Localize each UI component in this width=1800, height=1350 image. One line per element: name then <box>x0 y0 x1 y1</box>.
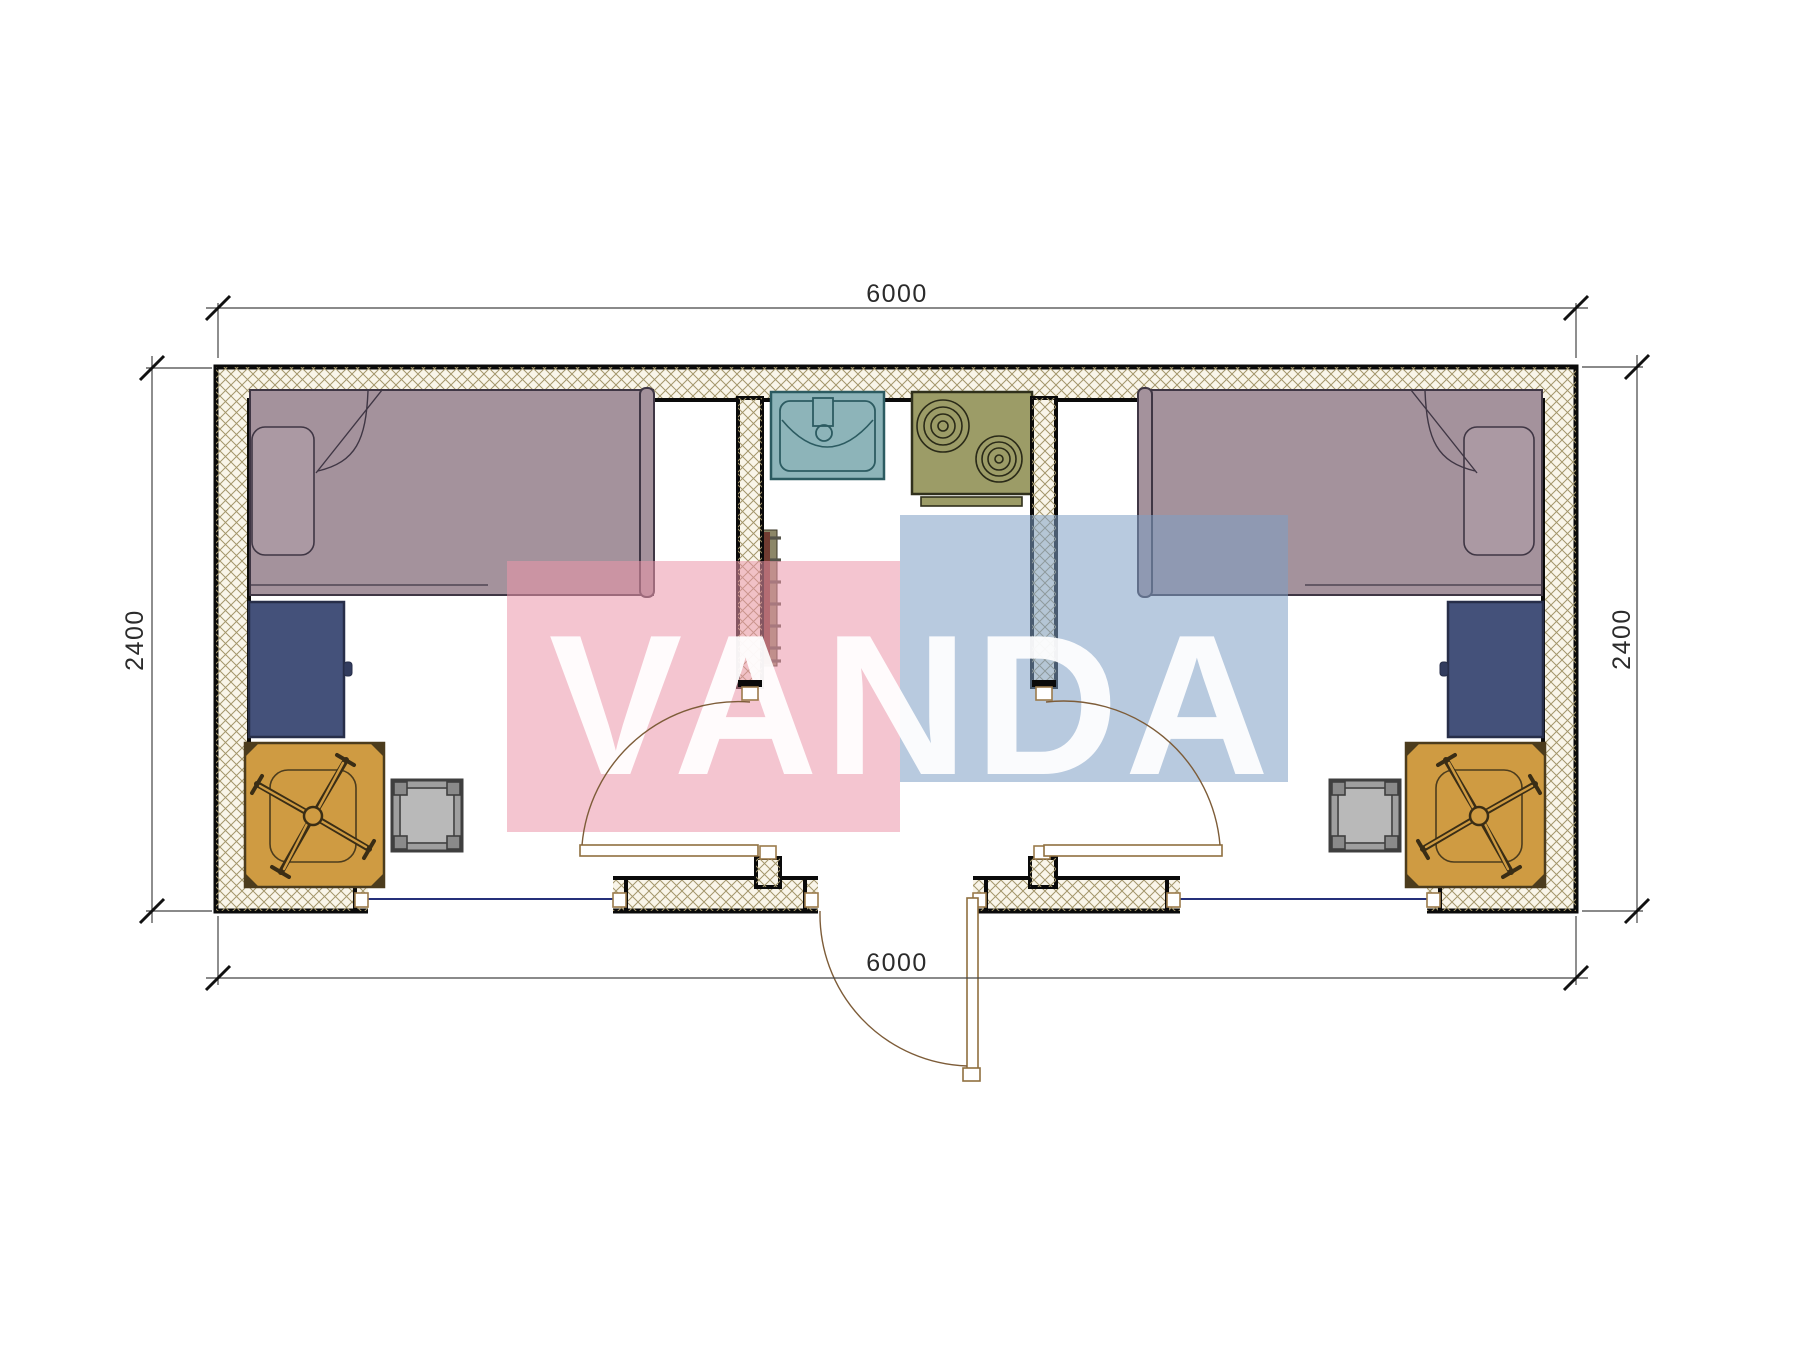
dim-label-bottom: 6000 <box>866 949 928 977</box>
room-door-left-leaf <box>580 845 758 856</box>
pillow-right <box>1464 427 1534 555</box>
window-opening-left <box>368 876 613 916</box>
floor-plan-page: VANDA <box>0 0 1800 1350</box>
stove <box>912 392 1032 506</box>
entry-door-opening <box>818 876 973 916</box>
watermark-text: VANDA <box>549 594 1275 817</box>
entry-door-arc <box>820 911 967 1066</box>
stool-right <box>1330 780 1400 851</box>
floor-plan-svg: VANDA <box>0 0 1800 1350</box>
window-opening-right <box>1180 876 1427 916</box>
dim-label-right: 2400 <box>1608 608 1636 670</box>
desk-knob-right <box>1440 662 1448 676</box>
entry-door-leaf <box>967 898 978 1072</box>
watermark: VANDA <box>507 515 1288 832</box>
door-stub-right <box>1030 858 1056 887</box>
faucet-icon <box>813 398 833 426</box>
room-door-right-leaf <box>1044 845 1222 856</box>
stool-left <box>392 780 462 851</box>
chair-left <box>245 743 384 887</box>
chair-right <box>1406 743 1545 887</box>
desk-knob-left <box>344 662 352 676</box>
desk-left <box>249 602 352 737</box>
pillow-left <box>252 427 314 555</box>
dim-label-top: 6000 <box>866 280 928 308</box>
dim-label-left: 2400 <box>121 609 149 671</box>
sink <box>771 392 884 479</box>
desk-right <box>1440 602 1543 737</box>
stove-control-bar <box>921 497 1022 506</box>
door-stub-left <box>756 858 780 887</box>
